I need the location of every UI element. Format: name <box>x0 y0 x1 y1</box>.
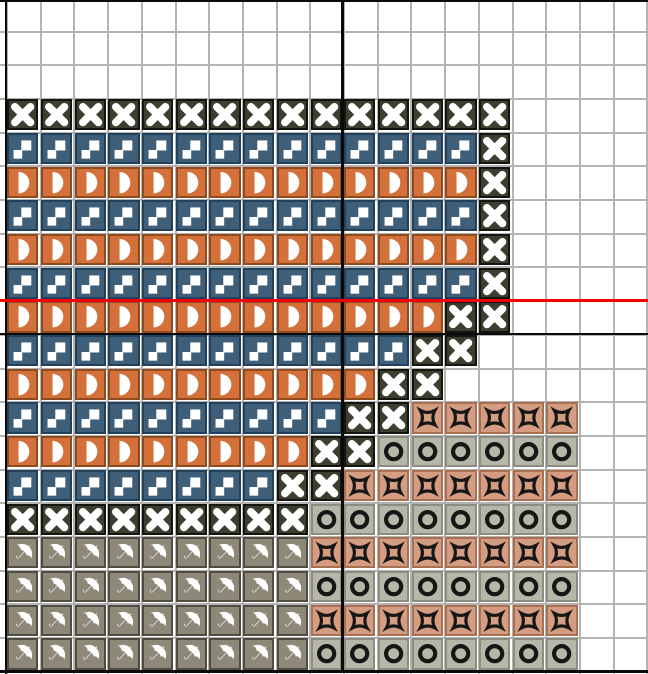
major-grid-line <box>0 670 648 673</box>
center-marker-line <box>0 299 648 302</box>
major-grid-line <box>0 0 648 2</box>
major-grid-line <box>341 0 344 671</box>
major-grid-line <box>5 0 8 674</box>
major-grid-lines-over <box>0 0 648 674</box>
stitch-pattern-canvas[interactable]: ☂☂☂☂☂☂☂☂☂☂☂☂☂☂☂☂☂☂☂☂☂☂☂☂☂☂☂☂☂☂☂☂☂☂☂☂ <box>0 0 648 674</box>
